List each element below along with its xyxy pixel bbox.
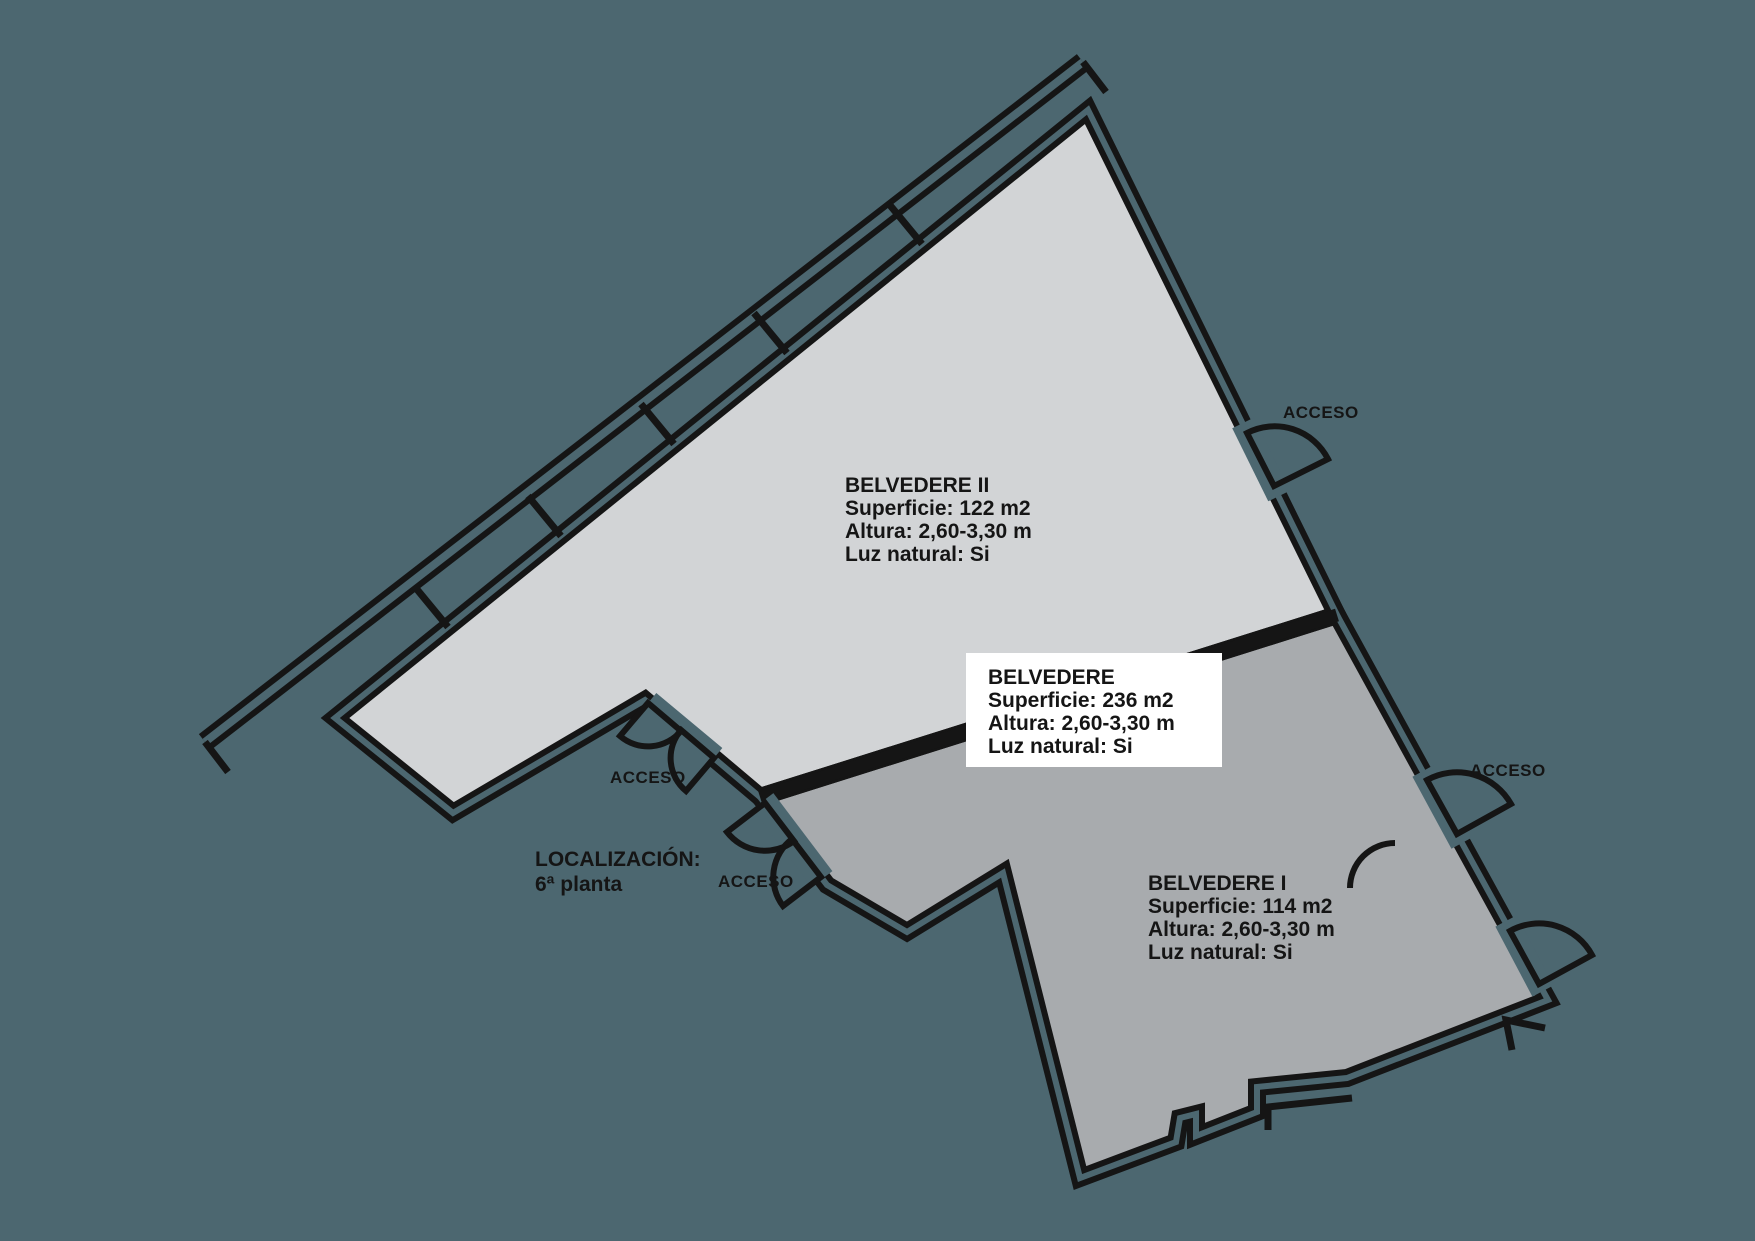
summary-title: BELVEDERE [988,666,1115,689]
belvedere-1-title: BELVEDERE I [1148,872,1286,895]
access-label-left-lower: ACCESO [718,872,794,891]
belvedere-1-superficie: Superficie: 114 m2 [1148,895,1332,918]
summary-box: BELVEDERE Superficie: 236 m2 Altura: 2,6… [966,653,1222,767]
access-label-right: ACCESO [1470,761,1546,780]
floor-plan: BELVEDERE II Superficie: 122 m2 Altura: … [0,0,1755,1241]
belvedere-1-altura: Altura: 2,60-3,30 m [1148,918,1335,941]
summary-altura: Altura: 2,60-3,30 m [988,712,1175,735]
belvedere-1-luz: Luz natural: Si [1148,941,1293,964]
location-line-1: LOCALIZACIÓN: [535,847,701,871]
belvedere-2-title: BELVEDERE II [845,474,989,497]
belvedere-2-altura: Altura: 2,60-3,30 m [845,520,1032,543]
summary-superficie: Superficie: 236 m2 [988,689,1174,712]
location-line-2: 6ª planta [535,873,622,896]
access-label-top-right: ACCESO [1283,403,1359,422]
access-label-left-upper: ACCESO [610,768,686,787]
belvedere-2-luz: Luz natural: Si [845,543,990,566]
belvedere-2-superficie: Superficie: 122 m2 [845,497,1031,520]
summary-luz: Luz natural: Si [988,735,1133,758]
floor-plan-canvas: BELVEDERE II Superficie: 122 m2 Altura: … [0,0,1755,1241]
